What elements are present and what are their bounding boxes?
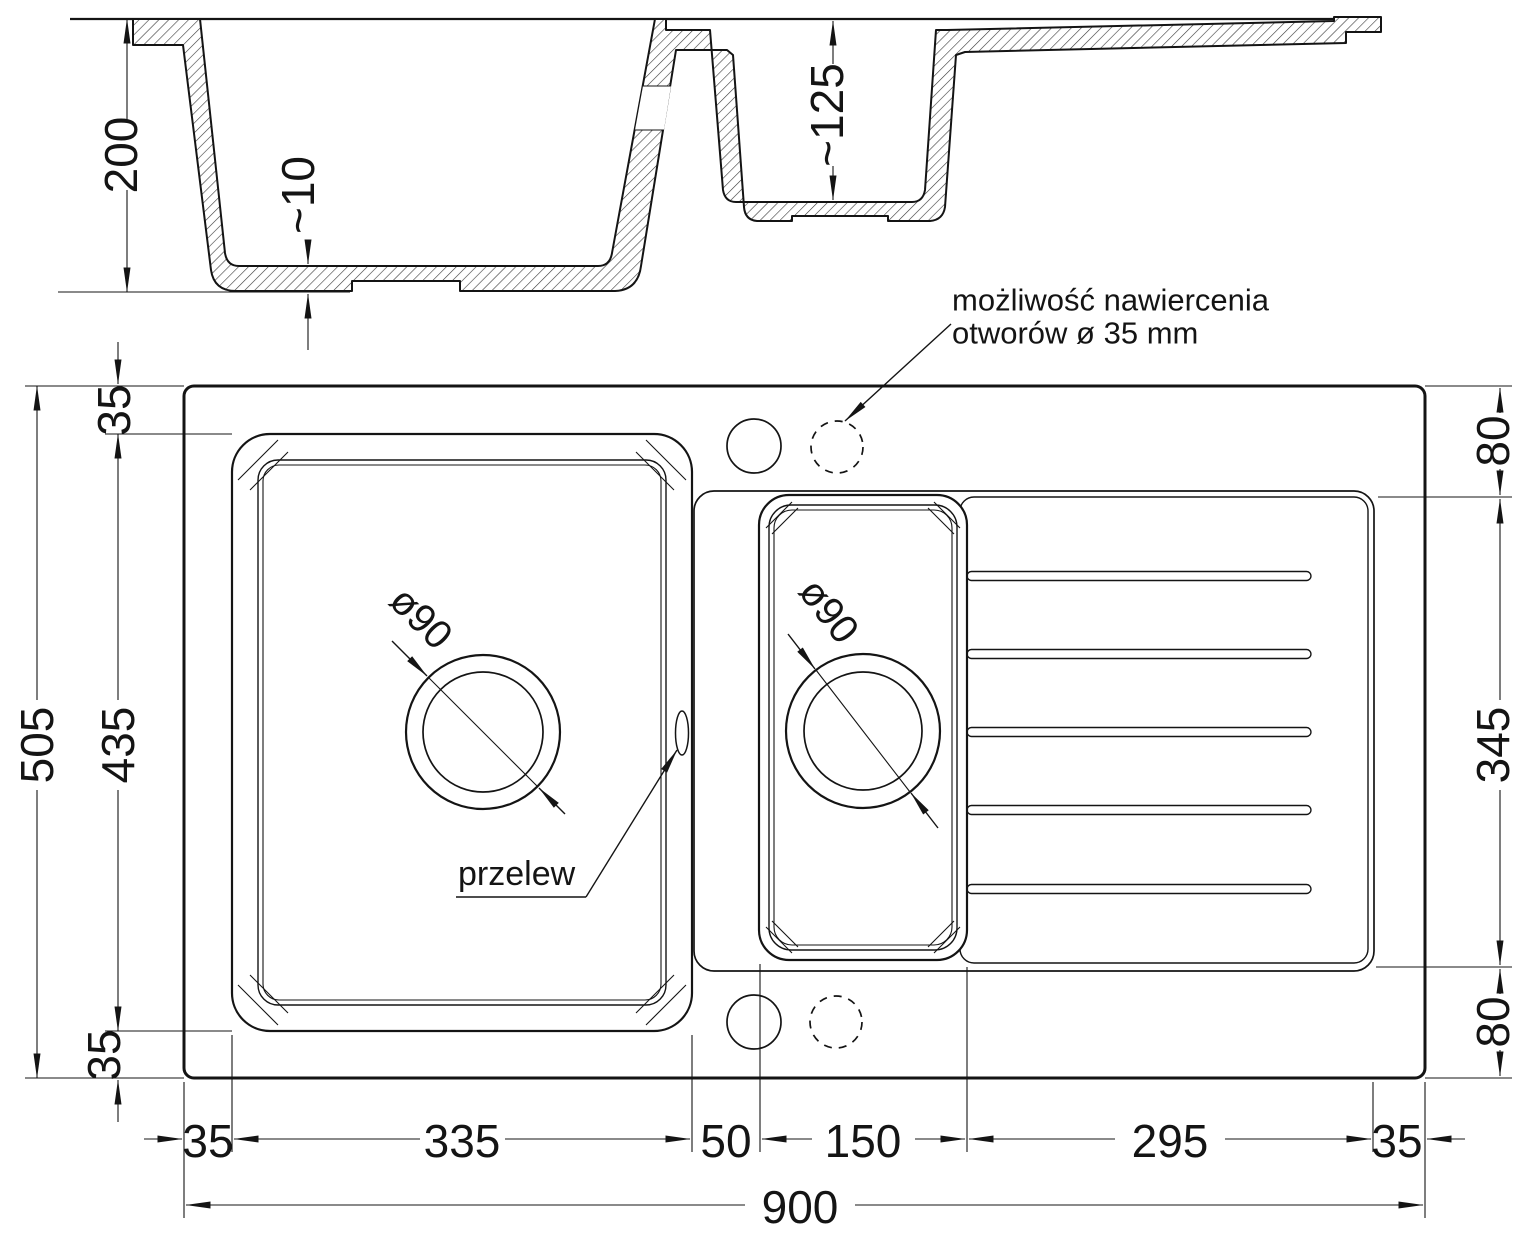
dim-label: 900	[762, 1181, 839, 1233]
plan-view: ø90 ø90	[184, 283, 1425, 1079]
dim-total-width-900: 900	[186, 1181, 1423, 1233]
section-shell	[133, 17, 1381, 291]
drill-note: możliwość nawiercenia otworów ø 35 mm	[845, 283, 1270, 422]
dim-label: 35	[78, 1029, 130, 1080]
dim-label: 35	[88, 384, 140, 435]
dim-label: 345	[1467, 707, 1519, 784]
small-bowl-rim	[759, 495, 967, 960]
dim-left-margin-35: 35	[144, 1115, 234, 1167]
dim-label: 50	[700, 1115, 751, 1167]
drill-note-line2: otworów ø 35 mm	[952, 316, 1198, 351]
drawing-canvas: 200 ~10 ~125	[0, 0, 1534, 1242]
main-bowl-rim	[232, 434, 692, 1031]
dim-bottom-offset-80: 80	[1467, 969, 1519, 1076]
dim-divider-50: 50	[700, 1115, 751, 1167]
dim-label: 150	[825, 1115, 902, 1167]
dim-label: 35	[1371, 1115, 1422, 1167]
faucet-hole-top	[727, 419, 781, 473]
dim-label-thickness: ~10	[272, 156, 324, 234]
rib	[967, 885, 1311, 894]
note-leader	[845, 324, 951, 421]
dim-right-margin-35: 35	[1371, 1115, 1465, 1167]
dim-label: 35	[182, 1115, 233, 1167]
dim-bottom-margin-35: 35	[78, 1029, 130, 1122]
drainer-ribs	[967, 572, 1311, 894]
dims-left: 505 435 35 35	[11, 342, 232, 1122]
dim-label-depth: 200	[95, 117, 147, 194]
dim-main-bowl-width-335: 335	[234, 1115, 690, 1167]
rib	[967, 806, 1311, 815]
sink-technical-drawing: 200 ~10 ~125	[0, 0, 1534, 1242]
dim-label-small-depth: ~125	[801, 63, 853, 167]
dim-bowl-height-435: 435	[92, 434, 144, 1031]
main-bowl: ø90	[232, 434, 692, 1031]
rib	[967, 728, 1311, 737]
dim-small-bowl-depth: ~125	[801, 21, 853, 200]
drill-note-line1: możliwość nawiercenia	[952, 283, 1270, 318]
rib	[967, 650, 1311, 659]
dim-top-margin-35: 35	[88, 342, 140, 436]
overflow-slot	[676, 711, 689, 755]
dim-label: 295	[1132, 1115, 1209, 1167]
dim-small-bowl-width-150: 150	[762, 1115, 965, 1167]
dim-top-offset-80: 80	[1467, 388, 1519, 495]
small-bowl: ø90	[759, 495, 967, 960]
dim-label: 435	[92, 707, 144, 784]
dim-bottom-thickness: ~10	[272, 156, 324, 350]
dim-label: 505	[11, 707, 63, 784]
rib	[967, 572, 1311, 581]
faucet-hole-bottom	[727, 995, 781, 1049]
dim-drainer-width-295: 295	[969, 1115, 1371, 1167]
dim-drainer-height-345: 345	[1467, 499, 1519, 965]
dim-label: 80	[1467, 996, 1519, 1047]
overflow-label: przelew	[458, 855, 576, 893]
section-overflow-gap	[635, 86, 671, 130]
optional-hole-top	[811, 421, 863, 473]
optional-hole-bottom	[810, 996, 862, 1048]
dims-right: 80 345 80	[1376, 386, 1519, 1078]
dim-label: 335	[424, 1115, 501, 1167]
dim-total-height-505: 505	[11, 386, 63, 1078]
dim-label: 80	[1467, 415, 1519, 466]
